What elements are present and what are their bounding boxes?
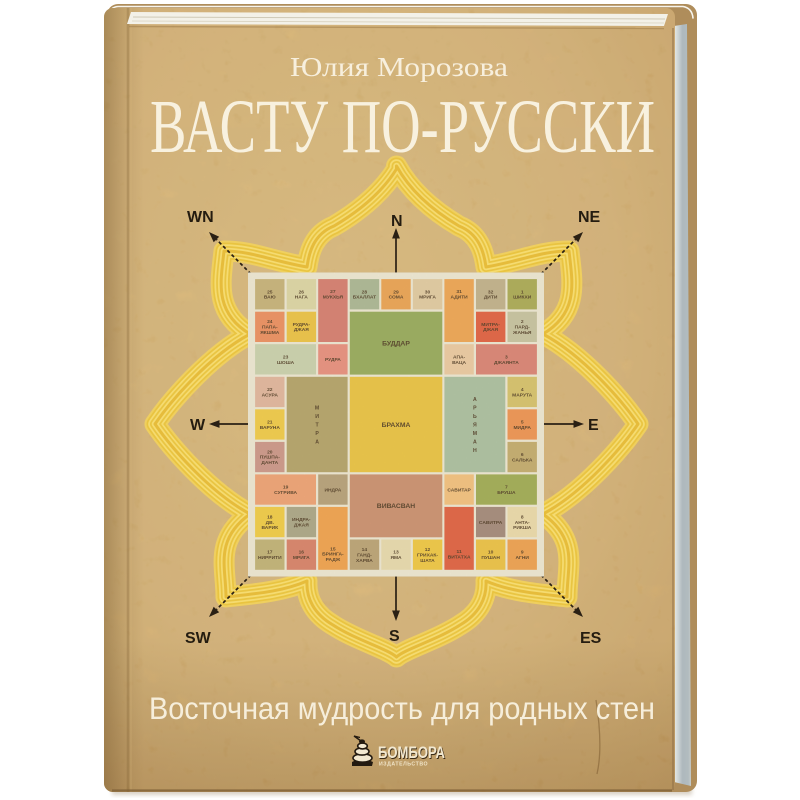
svg-text:Юлия Морозова: Юлия Морозова — [290, 52, 508, 82]
svg-text:WN: WN — [187, 209, 214, 226]
svg-text:ИЗДАТЕЛЬСТВО: ИЗДАТЕЛЬСТВО — [379, 762, 428, 768]
svg-text:S: S — [389, 628, 400, 645]
svg-text:NE: NE — [578, 209, 601, 226]
svg-text:Восточная мудрость для родных: Восточная мудрость для родных стен — [149, 690, 655, 726]
svg-text:N: N — [391, 213, 403, 230]
svg-text:W: W — [190, 417, 206, 434]
svg-text:ES: ES — [580, 630, 602, 647]
svg-text:БОМБОРА: БОМБОРА — [378, 744, 445, 762]
svg-text:SW: SW — [185, 630, 212, 647]
svg-text:E: E — [588, 417, 599, 434]
svg-text:ВАСТУ ПО-РУССКИ: ВАСТУ ПО-РУССКИ — [150, 85, 655, 169]
